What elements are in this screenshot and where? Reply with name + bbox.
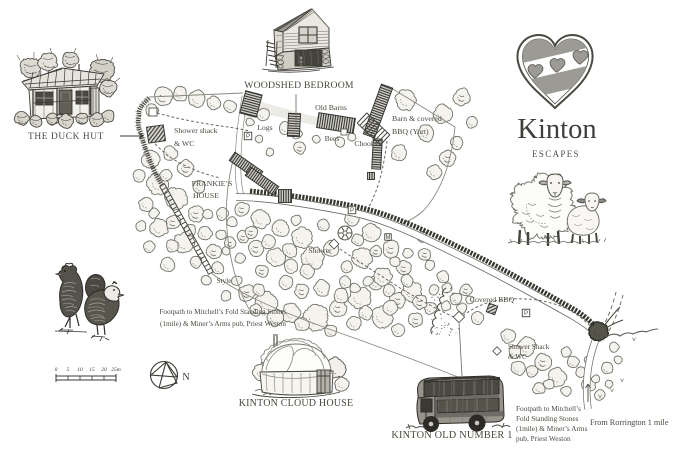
- svg-text:BBQ (Yurt): BBQ (Yurt): [392, 127, 429, 136]
- svg-text:Covered BBQ: Covered BBQ: [470, 295, 515, 304]
- svg-text:Style: Style: [217, 277, 232, 285]
- svg-text:Kinton: Kinton: [517, 114, 596, 145]
- svg-text:5: 5: [67, 367, 70, 373]
- svg-text:Shower: Shower: [308, 246, 332, 255]
- svg-text:Footpath to Mitchell’s Fold St: Footpath to Mitchell’s Fold Standing Sto…: [159, 308, 286, 316]
- svg-text:ESCAPES: ESCAPES: [532, 149, 580, 159]
- svg-text:Fold Standing Stones: Fold Standing Stones: [516, 414, 579, 423]
- svg-text:Shower shack: Shower shack: [174, 126, 218, 135]
- svg-text:KINTON OLD NUMBER 1: KINTON OLD NUMBER 1: [391, 430, 512, 441]
- svg-text:P: P: [524, 311, 528, 317]
- svg-text:pub, Priest Weston: pub, Priest Weston: [516, 434, 571, 443]
- svg-text:N: N: [182, 372, 189, 383]
- svg-text:Old Barns: Old Barns: [315, 103, 347, 112]
- svg-text:(1mile) & Miner’s Arms pub, Pr: (1mile) & Miner’s Arms pub, Priest Westo…: [160, 320, 286, 328]
- svg-text:From Rorrington 1 mile: From Rorrington 1 mile: [590, 418, 669, 427]
- svg-text:Shower Shack: Shower Shack: [508, 343, 550, 351]
- svg-text:& WC: & WC: [174, 139, 194, 148]
- svg-text:Barn & covered: Barn & covered: [392, 114, 442, 123]
- svg-text:10: 10: [77, 367, 83, 373]
- svg-text:20: 20: [101, 367, 107, 373]
- svg-text:Bees: Bees: [325, 134, 340, 143]
- svg-text:KINTON CLOUD HOUSE: KINTON CLOUD HOUSE: [239, 398, 354, 409]
- svg-text:15: 15: [89, 367, 95, 373]
- svg-text:25m: 25m: [111, 367, 121, 373]
- svg-text:FRANKIE’S: FRANKIE’S: [192, 179, 233, 188]
- svg-text:P: P: [350, 208, 354, 214]
- svg-text:0: 0: [55, 367, 58, 373]
- svg-text:M: M: [386, 235, 391, 241]
- svg-text:& WC: & WC: [508, 353, 527, 361]
- svg-text:WOODSHED BEDROOM: WOODSHED BEDROOM: [244, 80, 354, 91]
- svg-text:HOUSE: HOUSE: [193, 191, 219, 200]
- svg-text:Footpath to Mitchell’s: Footpath to Mitchell’s: [516, 404, 581, 413]
- svg-text:(1mile) & Miner’s Arms: (1mile) & Miner’s Arms: [516, 424, 588, 433]
- svg-text:THE DUCK HUT: THE DUCK HUT: [28, 132, 104, 142]
- svg-text:Chooks: Chooks: [354, 139, 377, 148]
- svg-text:P: P: [246, 134, 250, 140]
- svg-text:Logs: Logs: [257, 123, 272, 132]
